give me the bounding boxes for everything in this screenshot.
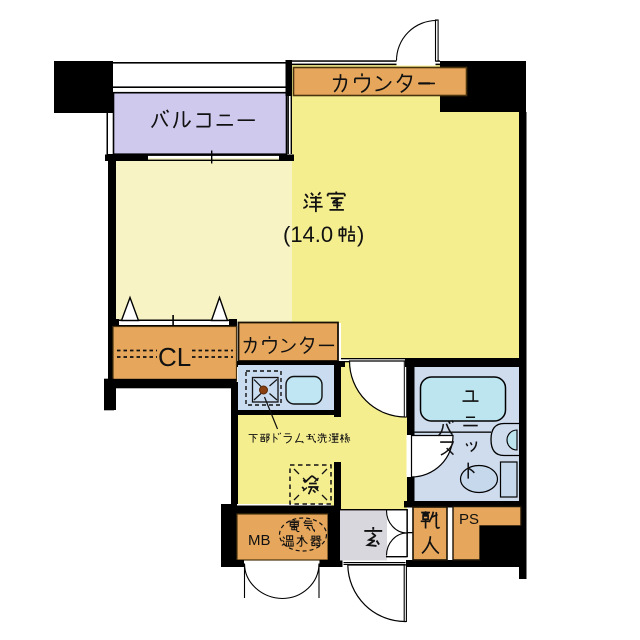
svg-text:PS: PS bbox=[459, 511, 479, 528]
svg-text:): ) bbox=[357, 222, 364, 247]
svg-text:(14.0: (14.0 bbox=[283, 222, 333, 247]
svg-text:CL: CL bbox=[158, 342, 191, 372]
svg-text:MB: MB bbox=[248, 532, 271, 549]
